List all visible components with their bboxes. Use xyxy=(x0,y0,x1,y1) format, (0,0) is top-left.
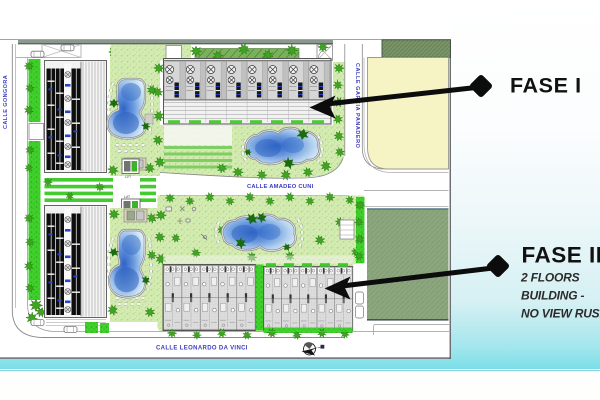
svg-text:CALLE AMADEO CUNI: CALLE AMADEO CUNI xyxy=(247,184,314,190)
svg-text:CALLE GONGORA: CALLE GONGORA xyxy=(3,75,9,129)
svg-text:2 FLOORS: 2 FLOORS xyxy=(520,271,580,285)
svg-text:LAT: LAT xyxy=(124,195,131,199)
svg-text:FASE I: FASE I xyxy=(510,74,582,98)
svg-text:FASE II: FASE II xyxy=(522,243,600,268)
svg-text:BUILDING -: BUILDING - xyxy=(521,289,585,303)
svg-text:CALLE GARCIA PANADERO: CALLE GARCIA PANADERO xyxy=(354,63,360,149)
svg-text:CALLE LEONARDO DA VINCI: CALLE LEONARDO DA VINCI xyxy=(156,346,248,352)
svg-text:LVT: LVT xyxy=(125,175,132,179)
svg-text:NO VIEW RUSH: NO VIEW RUSH xyxy=(521,307,600,321)
